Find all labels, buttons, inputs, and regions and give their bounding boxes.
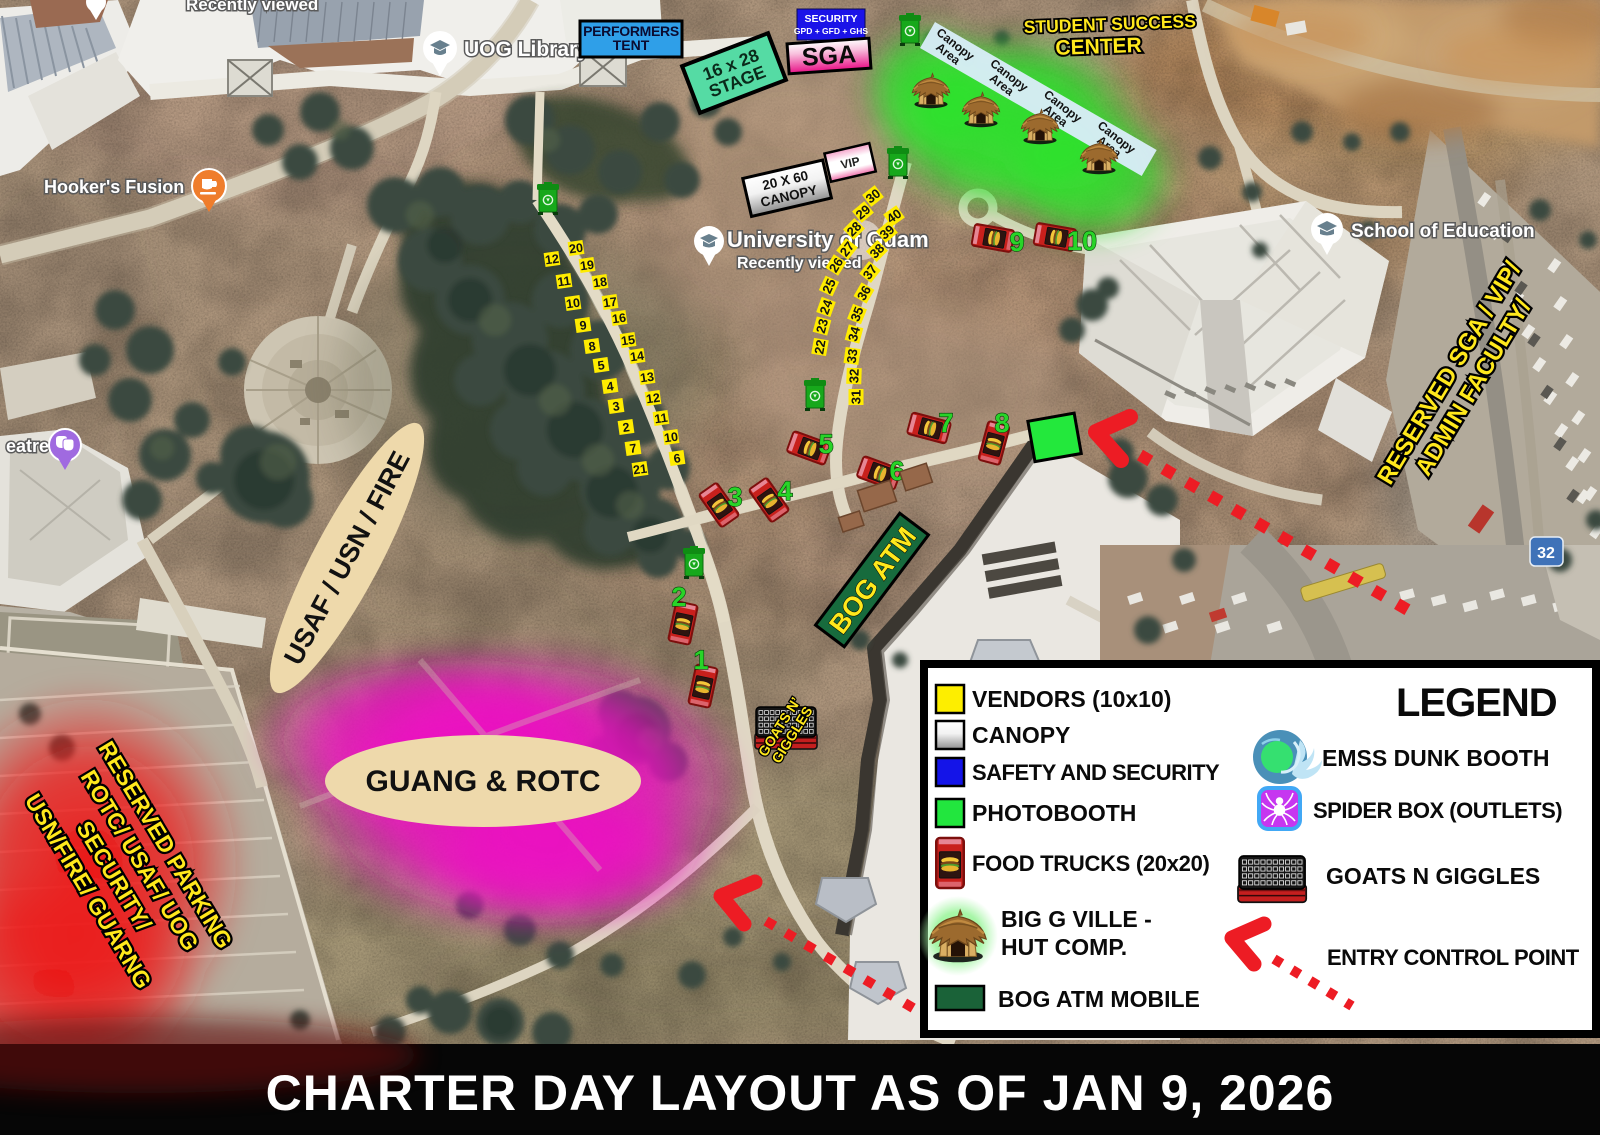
svg-text:11: 11 [654, 411, 669, 427]
svg-text:12: 12 [544, 252, 560, 268]
svg-text:SAFETY AND SECURITY: SAFETY AND SECURITY [972, 760, 1220, 785]
svg-text:GOATS N GIGGLES: GOATS N GIGGLES [1326, 863, 1540, 889]
svg-text:VENDORS (10x10): VENDORS (10x10) [972, 686, 1171, 712]
svg-text:5: 5 [818, 429, 833, 459]
svg-text:7: 7 [938, 408, 953, 438]
svg-text:ENTRY CONTROL POINT: ENTRY CONTROL POINT [1327, 945, 1580, 970]
svg-text:11: 11 [557, 274, 572, 290]
svg-text:20: 20 [568, 241, 584, 257]
svg-text:32: 32 [1537, 545, 1555, 562]
svg-text:SPIDER BOX (OUTLETS): SPIDER BOX (OUTLETS) [1313, 798, 1562, 823]
svg-text:TENT: TENT [613, 37, 650, 53]
svg-text:15: 15 [620, 333, 636, 349]
svg-text:16: 16 [611, 311, 627, 327]
svg-text:GUANG & ROTC: GUANG & ROTC [366, 765, 601, 798]
svg-text:Hooker's Fusion: Hooker's Fusion [44, 177, 184, 197]
svg-text:CENTER: CENTER [1055, 34, 1142, 60]
svg-text:2: 2 [671, 582, 686, 612]
svg-text:32: 32 [846, 369, 861, 384]
svg-text:8: 8 [994, 408, 1009, 438]
svg-text:1: 1 [693, 645, 708, 675]
svg-text:BOG ATM MOBILE: BOG ATM MOBILE [998, 986, 1200, 1012]
svg-text:9: 9 [1009, 227, 1024, 257]
svg-text:3: 3 [727, 482, 742, 512]
svg-text:21: 21 [632, 462, 648, 478]
svg-text:17: 17 [602, 295, 618, 311]
svg-text:eatre: eatre [6, 436, 49, 456]
svg-text:33: 33 [844, 348, 861, 364]
svg-text:BIG G VILLE -: BIG G VILLE - [1001, 906, 1152, 932]
svg-text:13: 13 [639, 370, 655, 386]
svg-text:GPD + GFD + GHS: GPD + GFD + GHS [794, 26, 868, 36]
svg-text:CANOPY: CANOPY [972, 722, 1070, 748]
svg-text:18: 18 [592, 275, 608, 291]
svg-text:EMSS DUNK BOOTH: EMSS DUNK BOOTH [1322, 745, 1549, 771]
svg-text:19: 19 [579, 258, 595, 274]
svg-text:31: 31 [849, 390, 864, 404]
svg-text:Recently viewed: Recently viewed [186, 0, 318, 14]
svg-text:10: 10 [1067, 226, 1097, 256]
svg-text:FOOD TRUCKS (20x20): FOOD TRUCKS (20x20) [972, 851, 1210, 876]
svg-text:SGA: SGA [801, 40, 857, 72]
svg-text:SECURITY: SECURITY [804, 13, 857, 25]
svg-text:4: 4 [777, 476, 792, 506]
svg-text:22: 22 [811, 339, 828, 356]
svg-text:HUT COMP.: HUT COMP. [1001, 934, 1127, 960]
svg-text:10: 10 [663, 430, 679, 446]
svg-text:14: 14 [629, 349, 645, 365]
svg-text:CHARTER DAY LAYOUT AS OF JAN 9: CHARTER DAY LAYOUT AS OF JAN 9, 2026 [266, 1065, 1335, 1121]
svg-text:University of Guam: University of Guam [727, 227, 929, 252]
svg-text:12: 12 [645, 391, 661, 407]
svg-text:PHOTOBOOTH: PHOTOBOOTH [972, 800, 1136, 826]
svg-text:School of Education: School of Education [1351, 221, 1535, 242]
svg-text:LEGEND: LEGEND [1396, 681, 1557, 725]
svg-text:UOG Library: UOG Library [464, 38, 589, 61]
svg-text:10: 10 [565, 296, 581, 312]
